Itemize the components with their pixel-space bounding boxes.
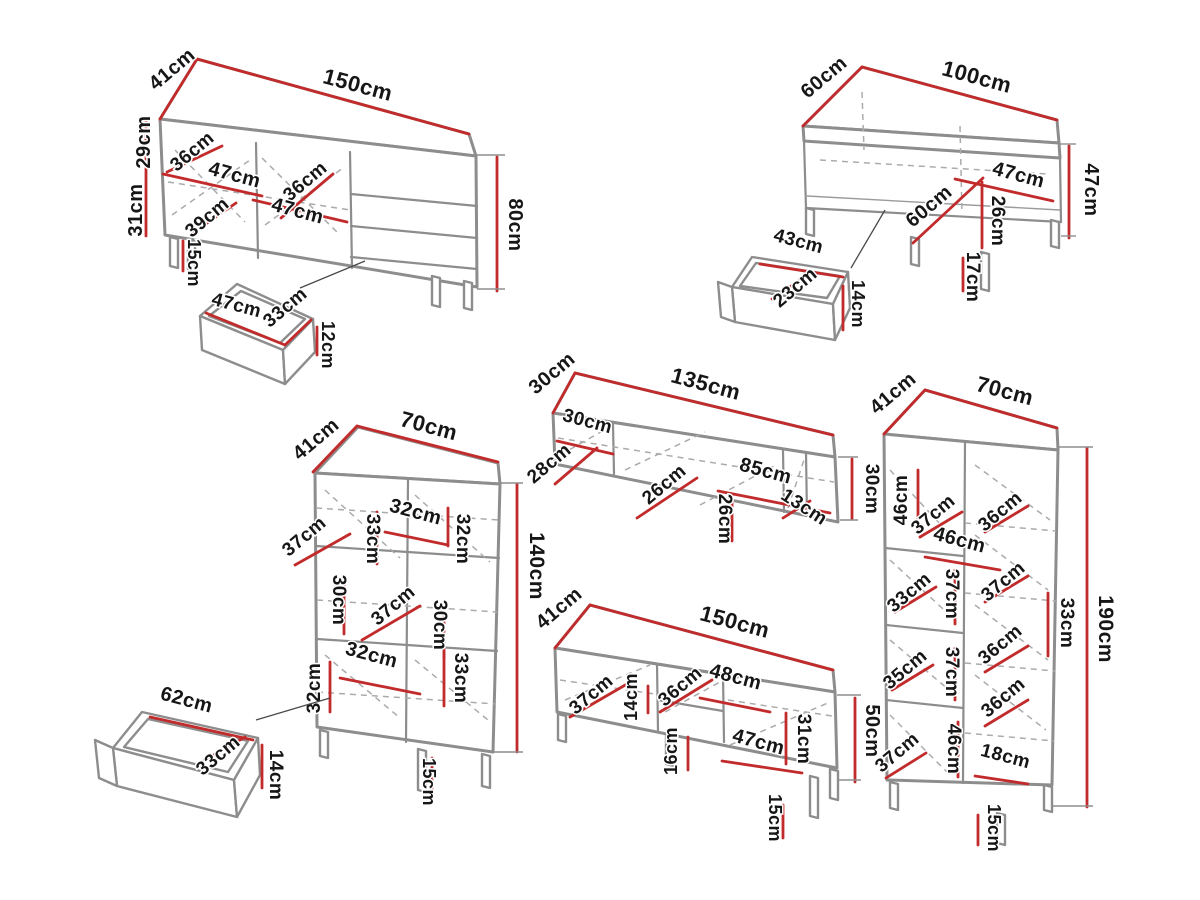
- furniture-dimensions-diagram: 41cm150cm29cm31cm15cm80cm36cm47cm36cm47c…: [0, 0, 1200, 900]
- coffee-table-100-dimension-label: 47cm: [1080, 163, 1102, 216]
- tv-stand-150-dimension-label: 16cm: [661, 727, 681, 775]
- cabinet-drawer-dimension-label: 62cm: [158, 683, 215, 718]
- tall-cabinet-190-dimension-label: 70cm: [974, 371, 1037, 410]
- tall-cabinet-190-dimension-label: 33cm: [1056, 598, 1077, 649]
- display-cabinet-140-dimension-label: 30cm: [429, 600, 450, 651]
- coffee-table-100-dimension-label: 60cm: [902, 181, 957, 232]
- tv-stand-150-dimension-label: 14cm: [621, 673, 641, 721]
- tv-stand-150-dimension-label: 31cm: [793, 714, 814, 765]
- tall-cabinet-190-dimension-label: 46cm: [891, 475, 912, 526]
- coffee-table-drawer: 43cm23cm14cm: [718, 210, 885, 340]
- coffee-table-100-dimension-label: 26cm: [987, 196, 1008, 247]
- coffee-table-drawer-dimension-label: 14cm: [848, 280, 868, 328]
- tv-stand-150: 41cm150cm50cm37cm14cm36cm48cm16cm47cm31c…: [532, 583, 883, 842]
- coffee-table-drawer-dimension-label: 43cm: [771, 225, 825, 258]
- cabinet-drawer: 62cm33cm14cm: [95, 683, 330, 817]
- coffee-table-100: 60cm100cm47cm47cm60cm26cm17cm: [797, 52, 1102, 302]
- furniture-dimension-sheet: 41cm150cm29cm31cm15cm80cm36cm47cm36cm47c…: [0, 0, 1200, 900]
- display-cabinet-140-dimension-label: 33cm: [450, 653, 471, 704]
- wall-shelf-135-dimension-label: 30cm: [861, 464, 882, 515]
- display-cabinet-140-dimension-label: 32cm: [452, 514, 473, 565]
- sideboard-150-dimension-label: 80cm: [504, 198, 526, 251]
- display-cabinet-140-dimension-label: 140cm: [525, 532, 548, 600]
- tall-cabinet-190-dimension-label: 190cm: [1094, 595, 1117, 663]
- display-cabinet-140-dimension-label: 33cm: [362, 514, 383, 565]
- tall-cabinet-190-dimension-label: 37cm: [941, 569, 962, 620]
- cabinet-drawer-dimension-label: 14cm: [265, 750, 286, 801]
- tall-cabinet-190: 41cm70cm190cm46cm37cm36cm46cm33cm37cm37c…: [866, 368, 1117, 852]
- coffee-table-100-dimension-label: 17cm: [962, 252, 983, 303]
- sideboard-150-dimension-label: 15cm: [184, 239, 204, 287]
- tall-cabinet-190-dimension-label: 37cm: [941, 647, 962, 698]
- sideboard-drawer-dimension-label: 12cm: [318, 321, 338, 369]
- wall-shelf-135: 30cm135cm30cm28cm26cm85cm26cm13cm30cm: [523, 348, 882, 544]
- sideboard-150-dimension-label: 31cm: [125, 183, 147, 236]
- tv-stand-150-dimension-label: 15cm: [765, 794, 785, 842]
- display-cabinet-140: 41cm70cm140cm37cm33cm32cm32cm30cm37cm30c…: [278, 406, 548, 806]
- wall-shelf-135-dimension-label: 26cm: [714, 494, 735, 545]
- tv-stand-150-dimension-label: 50cm: [861, 704, 883, 757]
- sideboard-drawer: 47cm33cm12cm: [200, 261, 365, 384]
- tall-cabinet-190-dimension-label: 46cm: [943, 724, 964, 775]
- sideboard-150: 41cm150cm29cm31cm15cm80cm36cm47cm36cm47c…: [125, 44, 526, 310]
- sideboard-150-dimension-label: 29cm: [133, 115, 155, 168]
- display-cabinet-140-dimension-label: 32cm: [304, 663, 325, 714]
- tall-cabinet-190-dimension-label: 15cm: [984, 804, 1004, 852]
- display-cabinet-140-dimension-label: 15cm: [419, 758, 439, 806]
- display-cabinet-140-dimension-label: 30cm: [328, 575, 349, 626]
